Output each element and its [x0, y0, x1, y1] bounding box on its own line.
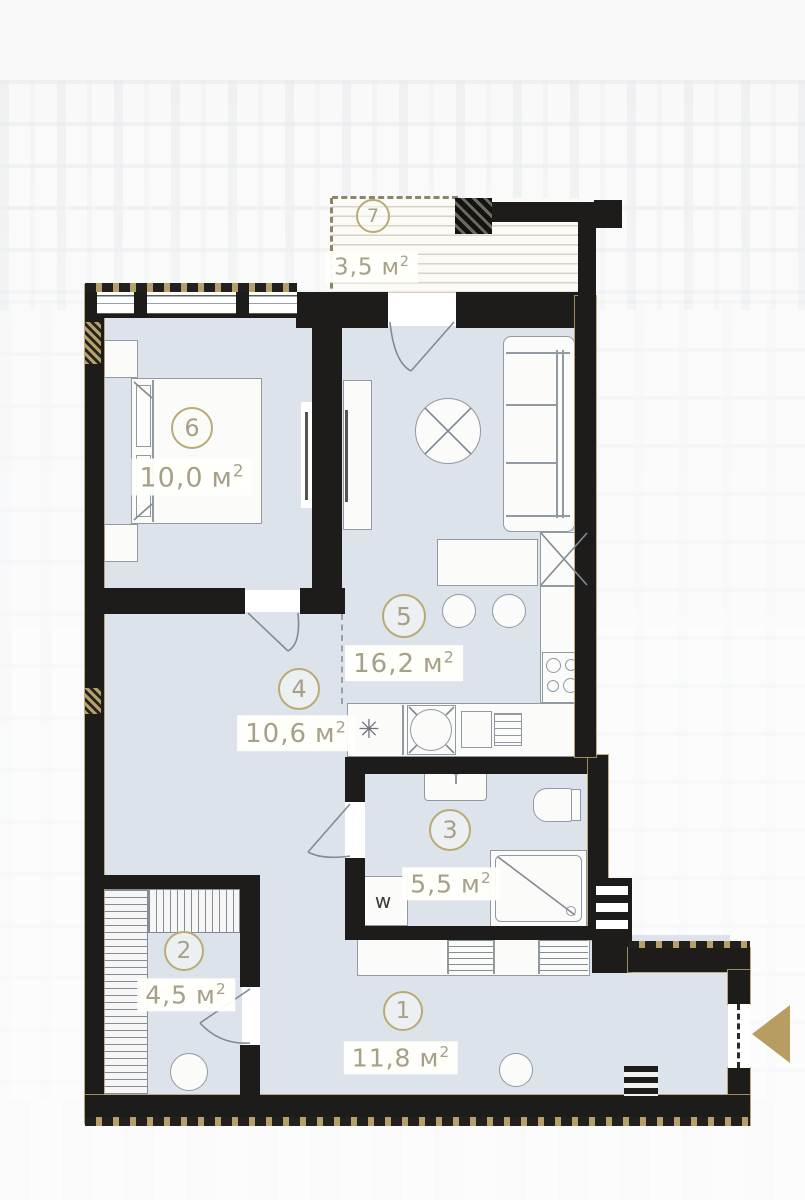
floor-passage: [260, 886, 345, 1096]
room-2-area: 4,5м2: [137, 978, 235, 1011]
kitchen-sink-bowl: [410, 709, 452, 751]
sofa-seat-line2: [506, 462, 558, 464]
room-6-number: 6: [171, 407, 213, 449]
wall-wardrobe-room-right-lower: [240, 1045, 260, 1095]
window-mullion-2: [236, 292, 249, 316]
shower-drain: [566, 906, 576, 916]
door-gap-wardrobe-room: [242, 987, 260, 1045]
tick-strip-entry: [628, 941, 750, 948]
nightstand-top: [104, 340, 138, 378]
window-mullion-1: [134, 292, 147, 316]
door-gap-bathroom: [345, 802, 365, 858]
wall-divider-bedroom-kitchen: [312, 316, 342, 614]
wall-right-upper: [728, 970, 750, 1004]
tick-strip-bottom: [85, 1117, 750, 1126]
entrance-door-dashed: [737, 1004, 740, 1068]
balcony-dashed-top: [332, 196, 458, 199]
washing-machine: w: [358, 876, 408, 926]
entry-vent-shaft: [624, 1066, 658, 1096]
hall-wardrobe-div2: [493, 940, 495, 974]
wall-balcony-stub: [594, 200, 622, 228]
room-3-number: 3: [429, 809, 471, 851]
sofa: [503, 336, 575, 532]
tick-strip-window: [85, 283, 297, 292]
room-7-number: 7: [356, 199, 390, 233]
wall-bathroom-top: [365, 757, 592, 774]
kitchen-island: [437, 539, 538, 586]
wall-bathroom-bottom: [345, 926, 608, 940]
door-gap-balcony: [388, 294, 456, 326]
room-5-area: 16,2м2: [345, 645, 463, 681]
wardrobe-rack-top: [148, 889, 240, 933]
nightstand-bottom: [104, 524, 138, 562]
open-boundary-dining-kitchen: [341, 614, 343, 704]
wall-balcony-top-right: [487, 202, 596, 222]
wall-bathroom-left-upper: [345, 757, 365, 802]
counter-divider: [402, 705, 404, 755]
entry-block-slot2: [596, 903, 628, 912]
sofa-armrest-bottom: [506, 515, 570, 517]
entry-block-slot3: [596, 920, 628, 929]
burner-3: [547, 680, 559, 692]
wall-bedroom-bottom-left: [85, 588, 245, 614]
wall-kitchen-right: [575, 296, 596, 757]
wall-entry-top: [628, 948, 750, 972]
wall-vent-hatch-lower: [85, 688, 101, 714]
fridge-icon: ✳: [358, 717, 380, 743]
room-2-number: 2: [164, 931, 204, 971]
hall-wardrobe-hatch2: [540, 940, 588, 974]
wall-vent-hatch-upper: [85, 322, 101, 364]
washing-machine-label: w: [375, 889, 391, 913]
balcony-dashed-left: [330, 198, 333, 298]
stool-1: [442, 594, 476, 628]
round-table: [415, 398, 481, 464]
room-5-number: 5: [382, 594, 426, 638]
pouf-hallway: [499, 1053, 533, 1087]
entrance-arrow-icon: [752, 1005, 790, 1063]
bedroom-window: [97, 292, 297, 314]
bath-faucet-stem: [455, 775, 457, 784]
dishwasher: [494, 713, 522, 746]
room-4-area: 10,6м2: [237, 715, 355, 751]
entry-block-slot1: [596, 886, 628, 895]
room-3-area: 5,5м2: [402, 867, 500, 900]
sofa-back-line2: [562, 350, 564, 518]
wall-wardrobe-room-right-upper: [240, 888, 260, 987]
wall-bottom-exterior: [85, 1095, 750, 1117]
toilet-bowl: [533, 788, 573, 822]
stool-2: [492, 594, 526, 628]
burner-1: [546, 658, 561, 673]
wall-bedroom-bottom-right: [300, 588, 345, 614]
room-4-number: 4: [278, 668, 320, 710]
tv-kitchen: [345, 410, 348, 502]
wall-wardrobe-room-top: [85, 875, 260, 889]
bed-headboard-line: [152, 380, 154, 522]
sofa-armrest-top: [506, 352, 570, 354]
tv-bedroom: [305, 412, 308, 500]
toilet-tank: [571, 789, 581, 821]
pillow-top: [136, 385, 151, 447]
floor-plan: ✳ w: [0, 0, 805, 1200]
balcony-column-hatched: [455, 198, 492, 234]
sofa-back-line: [556, 350, 558, 518]
hall-wardrobe-hatch1: [449, 940, 493, 974]
oven: [461, 711, 492, 748]
pouf-wardrobe-room: [170, 1053, 208, 1091]
door-gap-bedroom: [245, 590, 300, 612]
room-6-area: 10,0м2: [131, 459, 252, 496]
wall-top-kitchen-left: [296, 292, 388, 328]
sofa-seat-line1: [506, 404, 558, 406]
room-1-area: 11,8м2: [344, 1041, 458, 1074]
room-7-area: 3,5м2: [326, 252, 418, 283]
room-1-number: 1: [383, 991, 423, 1031]
